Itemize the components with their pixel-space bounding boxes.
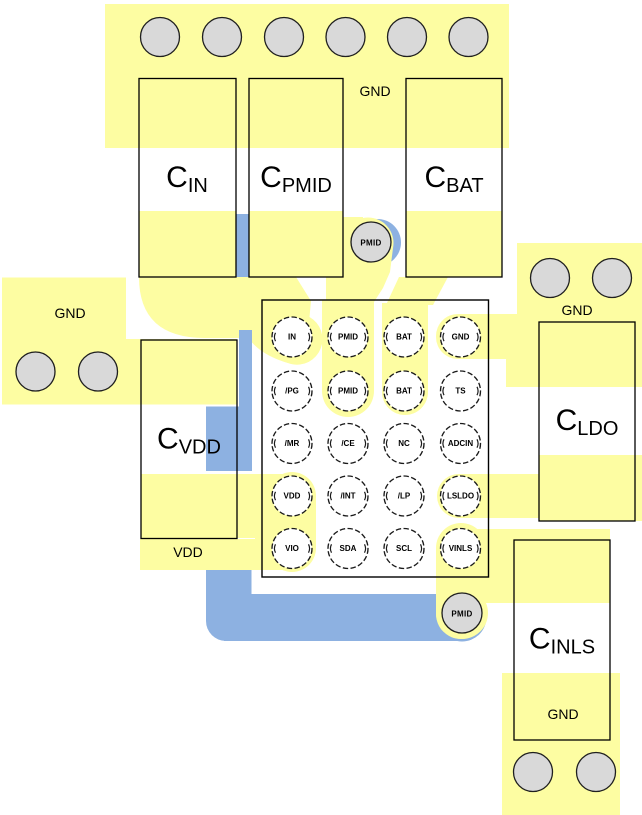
svg-text:VINLS: VINLS bbox=[449, 544, 473, 553]
svg-text:BAT: BAT bbox=[396, 387, 412, 396]
svg-text:/INT: /INT bbox=[340, 492, 355, 501]
svg-text:IN: IN bbox=[288, 333, 296, 342]
svg-text:/PG: /PG bbox=[285, 387, 299, 396]
svg-text:GND: GND bbox=[547, 706, 578, 722]
svg-text:/MR: /MR bbox=[285, 439, 300, 448]
svg-text:VIO: VIO bbox=[285, 544, 299, 553]
svg-text:VDD: VDD bbox=[284, 492, 301, 501]
svg-text:BAT: BAT bbox=[396, 333, 412, 342]
svg-text:SCL: SCL bbox=[396, 544, 412, 553]
svg-text:NC: NC bbox=[398, 439, 410, 448]
svg-text:GND: GND bbox=[561, 302, 592, 318]
svg-text:GND: GND bbox=[54, 305, 85, 321]
svg-text:ADCIN: ADCIN bbox=[448, 439, 474, 448]
svg-text:LSLDO: LSLDO bbox=[447, 492, 474, 501]
svg-text:VDD: VDD bbox=[173, 544, 203, 560]
svg-text:GND: GND bbox=[452, 333, 470, 342]
svg-text:PMID: PMID bbox=[451, 610, 472, 619]
svg-text:SDA: SDA bbox=[340, 544, 357, 553]
svg-text:/CE: /CE bbox=[341, 439, 355, 448]
svg-text:PMID: PMID bbox=[338, 387, 358, 396]
svg-text:/LP: /LP bbox=[398, 492, 411, 501]
svg-text:PMID: PMID bbox=[338, 333, 358, 342]
svg-text:GND: GND bbox=[359, 83, 390, 99]
svg-text:PMID: PMID bbox=[360, 239, 381, 248]
svg-text:TS: TS bbox=[455, 387, 466, 396]
